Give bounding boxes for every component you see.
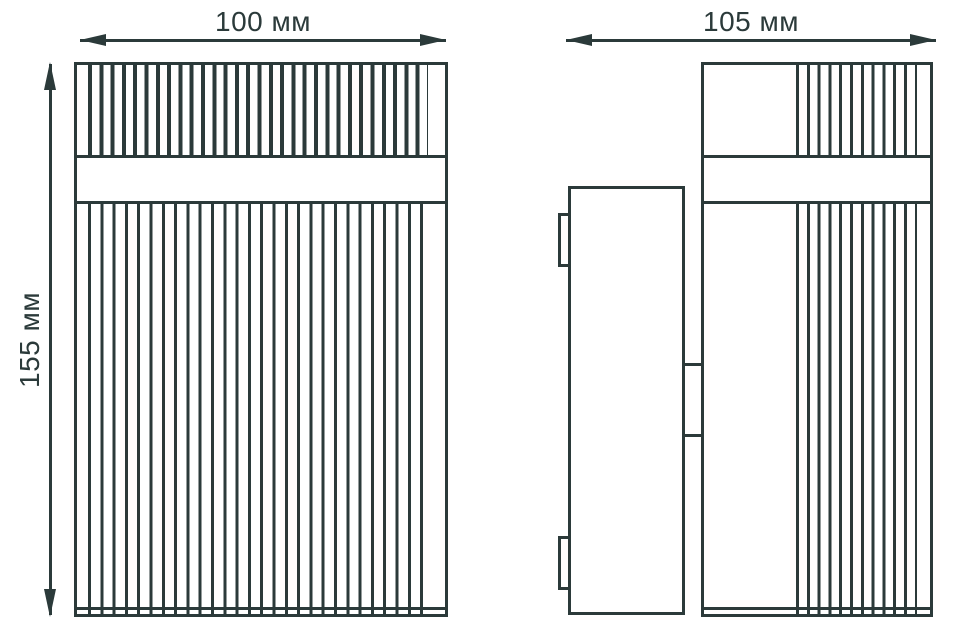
side-bottom-ribs	[796, 204, 917, 614]
bracket-top-tab	[558, 213, 571, 267]
front-width-dimension-label: 100 мм	[183, 6, 343, 38]
side-top-ribs	[796, 65, 917, 155]
side-band-top-line	[704, 155, 930, 158]
height-dimension-line	[49, 64, 52, 615]
front-width-arrow-left-icon	[80, 34, 106, 46]
front-band-top-line	[77, 155, 445, 158]
side-depth-dimension-label: 105 мм	[671, 6, 831, 38]
side-view-body	[701, 62, 933, 617]
side-depth-arrow-left-icon	[566, 34, 592, 46]
side-bottom-strip-line	[704, 607, 930, 610]
front-bottom-strip-line	[77, 607, 445, 610]
height-dimension-label: 155 мм	[13, 280, 47, 400]
front-bottom-ribs	[88, 204, 428, 614]
height-arrow-up-icon	[44, 62, 56, 90]
height-arrow-down-icon	[44, 589, 56, 617]
side-depth-arrow-right-icon	[910, 34, 936, 46]
front-width-arrow-right-icon	[420, 34, 446, 46]
technical-drawing: 100 мм 105 мм 155 мм	[0, 0, 960, 636]
front-top-ribs	[88, 65, 428, 155]
side-view-mount-bracket	[568, 186, 685, 615]
bracket-bottom-tab	[558, 536, 571, 590]
side-depth-dimension-line	[566, 39, 936, 42]
front-width-dimension-line	[80, 39, 446, 42]
front-view-body	[74, 62, 448, 617]
